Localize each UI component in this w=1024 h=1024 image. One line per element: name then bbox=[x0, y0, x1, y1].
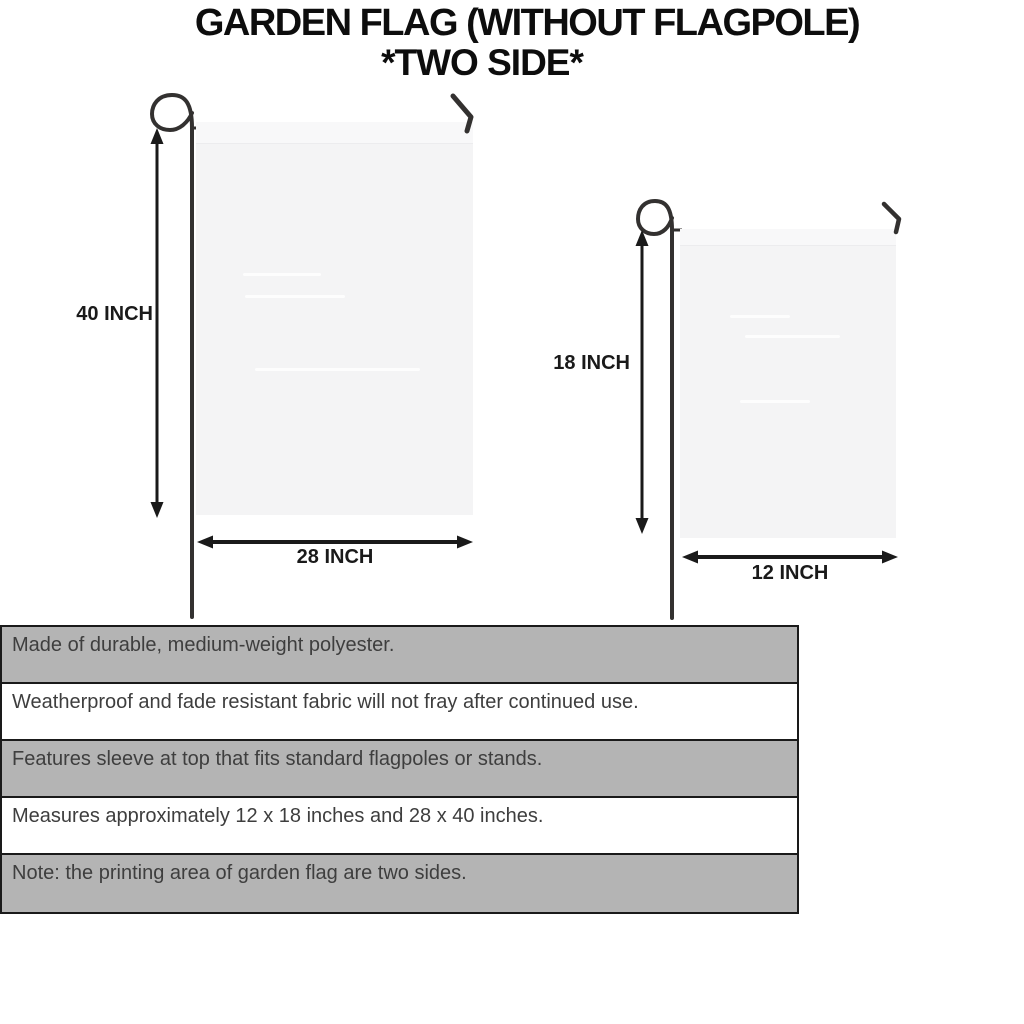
pole-hook-icon bbox=[445, 88, 485, 138]
flag-print-ghost bbox=[243, 273, 321, 276]
features-table: Made of durable, medium-weight polyester… bbox=[0, 625, 799, 914]
page-title: GARDEN FLAG (WITHOUT FLAGPOLE) bbox=[30, 3, 1024, 43]
flag-canvas-small bbox=[680, 229, 896, 538]
height-label-large: 40 INCH bbox=[45, 303, 153, 326]
width-label-small: 12 INCH bbox=[690, 562, 890, 585]
height-label-small: 18 INCH bbox=[535, 352, 630, 375]
feature-row: Made of durable, medium-weight polyester… bbox=[2, 627, 797, 684]
flag-print-ghost bbox=[245, 295, 345, 298]
garden-flag-infographic: GARDEN FLAG (WITHOUT FLAGPOLE) *TWO SIDE… bbox=[0, 0, 1024, 1024]
flag-sleeve-small bbox=[680, 229, 896, 246]
flag-sleeve-large bbox=[196, 122, 473, 144]
pole-hook-icon bbox=[872, 196, 908, 242]
width-label-large: 28 INCH bbox=[235, 546, 435, 569]
feature-row: Features sleeve at top that fits standar… bbox=[2, 741, 797, 798]
feature-row: Note: the printing area of garden flag a… bbox=[2, 855, 797, 912]
feature-row: Weatherproof and fade resistant fabric w… bbox=[2, 684, 797, 741]
page-subtitle: *TWO SIDE* bbox=[0, 43, 964, 83]
flag-canvas-large bbox=[196, 122, 473, 515]
flag-print-ghost bbox=[255, 368, 420, 371]
flag-print-ghost bbox=[740, 400, 810, 403]
flag-print-ghost bbox=[745, 335, 840, 338]
height-dimension-arrow-small bbox=[632, 229, 652, 535]
flag-print-ghost bbox=[730, 315, 790, 318]
feature-row: Measures approximately 12 x 18 inches an… bbox=[2, 798, 797, 855]
